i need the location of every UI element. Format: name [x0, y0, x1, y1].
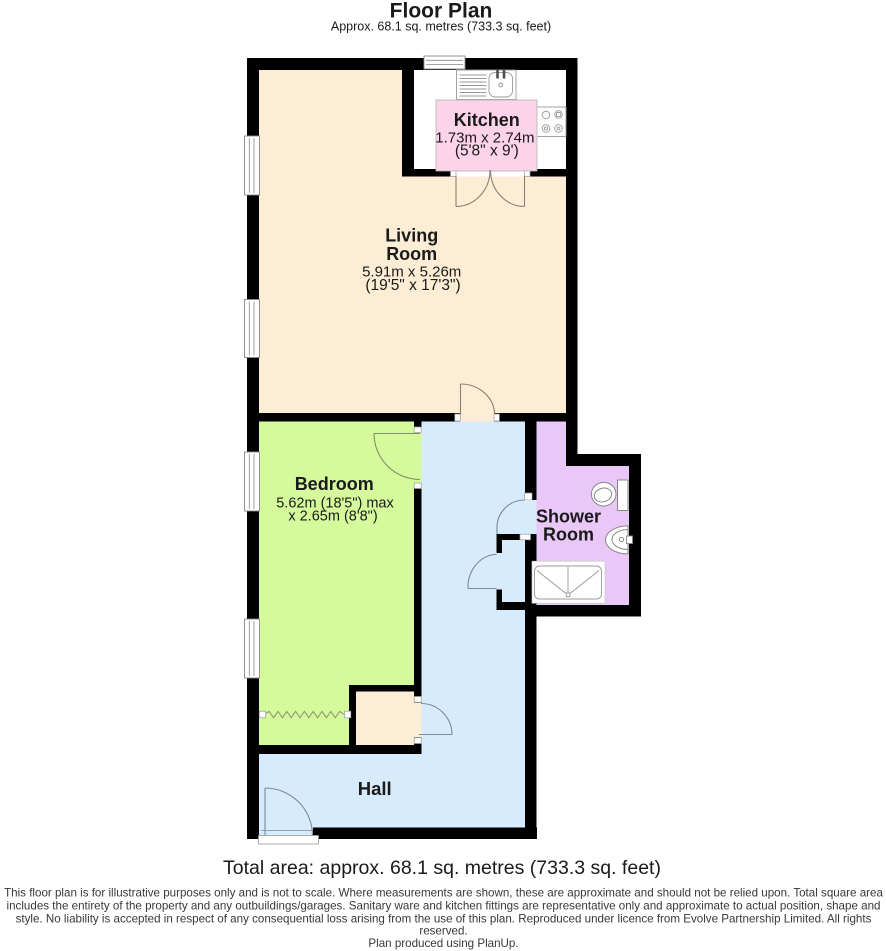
svg-text:reserved.: reserved. — [419, 925, 467, 938]
svg-text:Total area: approx. 68.1 sq. m: Total area: approx. 68.1 sq. metres (733… — [223, 857, 661, 879]
svg-text:Hall: Hall — [358, 778, 392, 799]
svg-text:(19'5" x 17'3"): (19'5" x 17'3") — [365, 277, 460, 294]
svg-text:Room: Room — [543, 525, 594, 545]
svg-text:Approx. 68.1 sq. metres (733.3: Approx. 68.1 sq. metres (733.3 sq. feet) — [331, 20, 551, 34]
svg-text:x 2.65m (8'8"): x 2.65m (8'8") — [288, 509, 377, 525]
svg-text:Living: Living — [385, 226, 438, 246]
svg-text:includes the entirety of the p: includes the entirety of the property an… — [7, 900, 881, 913]
svg-text:Kitchen: Kitchen — [454, 110, 520, 130]
svg-text:Shower: Shower — [536, 506, 601, 526]
svg-text:Room: Room — [386, 244, 437, 264]
svg-text:Bedroom: Bedroom — [295, 474, 374, 494]
svg-text:This floor plan is for illustr: This floor plan is for illustrative purp… — [4, 887, 883, 900]
svg-text:Plan produced using PlanUp.: Plan produced using PlanUp. — [368, 937, 518, 950]
svg-text:style. No liability is accept: style. No liability is accepted in respe… — [16, 912, 872, 925]
svg-text:(5'8" x 9'): (5'8" x 9') — [455, 143, 519, 160]
